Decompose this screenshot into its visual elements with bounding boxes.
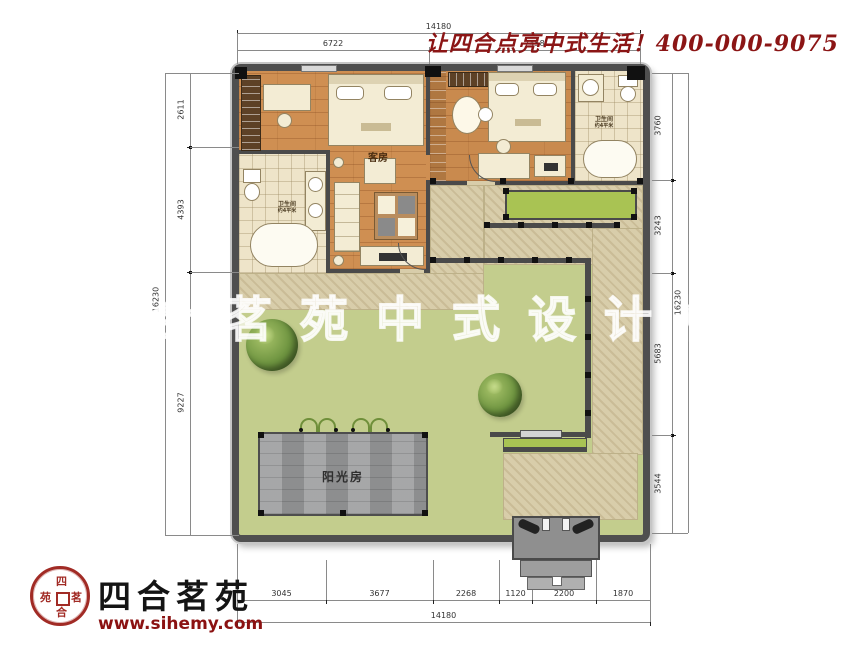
column-post	[586, 222, 592, 228]
dim-ext	[650, 544, 651, 622]
dim-left-seg1: 2611	[177, 80, 186, 140]
planting-bed	[505, 190, 637, 220]
dim-right-seg2: 3243	[654, 196, 663, 256]
dim-ext	[499, 560, 500, 600]
dim-bottom-seg2: 3677	[326, 589, 433, 598]
marketing-slogan: 让四合点亮中式生活！400-000-9075	[415, 26, 839, 58]
column-post	[631, 188, 637, 194]
column-post	[614, 222, 620, 228]
seal-char: 苑	[40, 592, 51, 603]
path-entrance-court	[503, 453, 638, 520]
column-post	[637, 178, 643, 184]
bathtub	[583, 140, 637, 178]
column-post	[258, 432, 264, 438]
column-post	[552, 222, 558, 228]
dim-line	[237, 600, 650, 601]
sofa	[334, 182, 360, 252]
dim-bottom-total: 14180	[237, 611, 650, 620]
column-post	[566, 257, 572, 263]
brand-url: www.sihemy.com	[98, 614, 263, 634]
desk	[263, 84, 311, 111]
column-post	[430, 257, 436, 263]
window	[497, 65, 533, 72]
dim-ext	[165, 73, 239, 74]
dim-bottom-seg6: 1870	[596, 589, 650, 598]
dim-right-seg1: 3760	[654, 96, 663, 156]
dim-ext	[652, 180, 672, 181]
column-post	[532, 257, 538, 263]
pillow	[533, 83, 557, 96]
bathroom-left-sub: 约4平米	[267, 208, 307, 215]
column-post	[430, 178, 436, 184]
pillow	[384, 86, 412, 100]
toilet	[243, 169, 261, 183]
column-post	[484, 222, 490, 228]
dim-ext	[190, 147, 239, 148]
column-post	[568, 178, 574, 184]
headboard	[329, 75, 423, 84]
bathroom-left-label: 卫生间 约4平米	[267, 201, 307, 215]
watermark-text: 四合茗苑中式设计机构	[72, 280, 832, 350]
seal-char: 合	[56, 607, 67, 618]
wall-segment	[503, 447, 587, 452]
toilet-bowl	[244, 183, 260, 201]
column-post	[585, 410, 591, 416]
bathtub	[250, 223, 318, 267]
gate-post	[562, 518, 570, 531]
seal-char: 四	[56, 576, 67, 587]
gate-post	[542, 518, 550, 531]
entrance-gatehouse	[512, 514, 600, 592]
dim-ext	[652, 533, 688, 534]
seal-square	[56, 592, 70, 606]
garden-gate	[520, 430, 562, 438]
ottoman	[478, 107, 493, 122]
dim-left-seg3: 9227	[177, 373, 186, 433]
pillow	[495, 83, 519, 96]
chair	[496, 139, 511, 154]
sink	[308, 203, 323, 218]
brand-seal-icon: 四 苑 茗 合	[30, 566, 90, 626]
chair	[277, 113, 292, 128]
column-post	[518, 222, 524, 228]
tree-icon	[478, 373, 522, 417]
dim-ext	[237, 33, 238, 64]
blanket-fold	[361, 123, 391, 131]
table-pane	[398, 196, 415, 214]
toilet-bowl	[620, 86, 636, 102]
dim-right-seg4: 3544	[654, 454, 663, 514]
brand-name: 四合茗苑	[98, 570, 254, 618]
tv	[544, 163, 558, 171]
dim-left-seg2: 4393	[177, 180, 186, 240]
sink	[582, 79, 599, 96]
dim-ext	[326, 560, 327, 600]
bathroom-right-title: 卫生间	[584, 116, 624, 123]
table-pane	[398, 218, 415, 236]
guest-room-label: 客房	[348, 149, 408, 164]
tea-table	[374, 192, 418, 240]
corner-post	[627, 66, 645, 80]
closet	[430, 71, 446, 181]
window	[301, 65, 337, 72]
dim-ext	[433, 560, 434, 600]
bed	[488, 72, 566, 142]
door-arc	[469, 155, 496, 182]
column-post	[503, 188, 509, 194]
column-post	[503, 214, 509, 220]
gate-step	[520, 560, 592, 577]
dim-ext	[652, 435, 672, 436]
pillow	[336, 86, 364, 100]
blanket-fold	[515, 119, 541, 126]
column-post	[498, 257, 504, 263]
column-post	[464, 257, 470, 263]
page: { "header": { "slogan": "让四合点亮中式生活！400-0…	[0, 0, 850, 660]
junction-post	[425, 66, 441, 77]
column-post	[340, 510, 346, 516]
column-post	[585, 372, 591, 378]
table-pane	[378, 196, 395, 214]
column-post	[631, 214, 637, 220]
dim-ext	[165, 535, 239, 536]
dim-top-seg1: 6722	[237, 39, 429, 48]
table-pane	[378, 218, 395, 236]
column-post	[422, 510, 428, 516]
tv-bench	[534, 155, 566, 177]
headboard	[489, 73, 565, 81]
dim-ext	[190, 272, 239, 273]
dim-ext	[652, 273, 672, 274]
seal-char: 茗	[71, 592, 82, 603]
guest-suite-left	[239, 71, 430, 273]
dim-bottom-seg3: 2268	[433, 589, 499, 598]
dim-line	[237, 622, 650, 623]
stool	[333, 255, 344, 266]
wardrobe	[241, 75, 261, 151]
column-post	[422, 432, 428, 438]
bed	[328, 74, 424, 146]
bathroom-right-label: 卫生间 约4平米	[584, 116, 624, 130]
wardrobe	[448, 72, 492, 87]
bathroom-left-title: 卫生间	[267, 201, 307, 208]
bathroom-right-sub: 约4平米	[584, 123, 624, 130]
column-post	[258, 510, 264, 516]
stool	[333, 157, 344, 168]
sink	[308, 177, 323, 192]
sunroom-label: 阳光房	[260, 468, 426, 485]
gate-marker	[552, 576, 562, 586]
dim-ext	[652, 73, 688, 74]
sunroom: 阳光房	[258, 432, 428, 516]
column-post	[500, 178, 506, 184]
